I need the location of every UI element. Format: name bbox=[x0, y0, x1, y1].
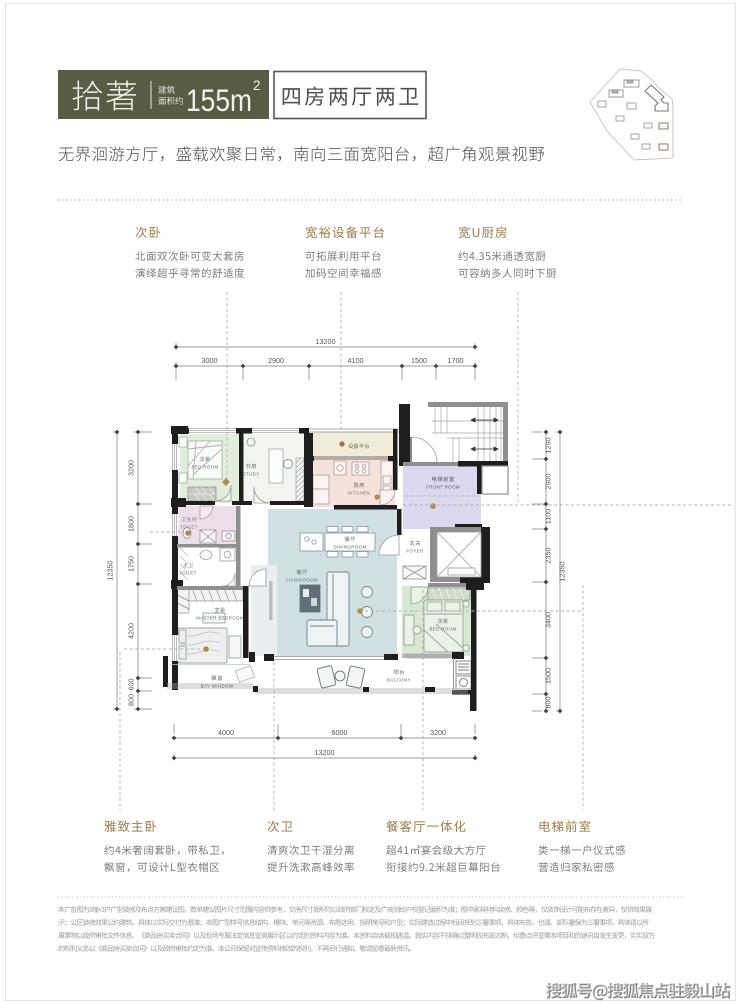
svg-text:3200: 3200 bbox=[430, 728, 446, 737]
svg-text:13200: 13200 bbox=[315, 748, 335, 757]
svg-text:3400: 3400 bbox=[544, 612, 553, 628]
svg-text:2900: 2900 bbox=[268, 356, 284, 365]
svg-text:3200: 3200 bbox=[127, 460, 136, 476]
svg-text:DININGROOM: DININGROOM bbox=[333, 545, 366, 550]
svg-text:FRONT ROOM: FRONT ROOM bbox=[426, 485, 460, 490]
svg-text:12350: 12350 bbox=[558, 562, 567, 582]
svg-text:TOILET: TOILET bbox=[180, 525, 198, 530]
svg-text:BED ROOM: BED ROOM bbox=[429, 627, 456, 632]
svg-text:TOILET: TOILET bbox=[179, 571, 197, 576]
svg-text:1500: 1500 bbox=[411, 356, 427, 365]
svg-text:1800: 1800 bbox=[127, 516, 136, 532]
svg-text:1700: 1700 bbox=[448, 356, 464, 365]
svg-text:BAY WINDOW: BAY WINDOW bbox=[201, 684, 234, 689]
svg-text:4200: 4200 bbox=[127, 623, 136, 639]
svg-text:3000: 3000 bbox=[202, 356, 218, 365]
svg-text:1500: 1500 bbox=[544, 668, 553, 684]
svg-text:1200: 1200 bbox=[544, 438, 553, 454]
svg-text:2: 2 bbox=[253, 78, 261, 93]
svg-text:800: 800 bbox=[544, 697, 553, 709]
svg-text:1100: 1100 bbox=[544, 509, 553, 524]
svg-text:MASTER BEDROOM: MASTER BEDROOM bbox=[196, 616, 244, 621]
svg-text:4000: 4000 bbox=[218, 728, 234, 737]
svg-text:155m: 155m bbox=[186, 82, 252, 118]
svg-text:STUDY: STUDY bbox=[243, 472, 260, 477]
svg-text:6000: 6000 bbox=[332, 728, 348, 737]
svg-text:1750: 1750 bbox=[127, 556, 136, 572]
svg-text:2000: 2000 bbox=[544, 474, 553, 490]
svg-text:BED ROOM: BED ROOM bbox=[191, 465, 218, 470]
svg-text:KITCHEN: KITCHEN bbox=[348, 491, 370, 496]
svg-text:12350: 12350 bbox=[106, 561, 115, 581]
svg-text:13200: 13200 bbox=[316, 337, 336, 346]
svg-text:BALCONY: BALCONY bbox=[387, 678, 411, 683]
svg-text:FOYER: FOYER bbox=[406, 549, 423, 554]
svg-text:800: 800 bbox=[127, 694, 136, 706]
svg-text:600: 600 bbox=[127, 679, 136, 691]
svg-text:LIVINGROOM: LIVINGROOM bbox=[286, 578, 318, 583]
svg-text:2350: 2350 bbox=[544, 548, 553, 564]
svg-text:4100: 4100 bbox=[348, 356, 364, 365]
